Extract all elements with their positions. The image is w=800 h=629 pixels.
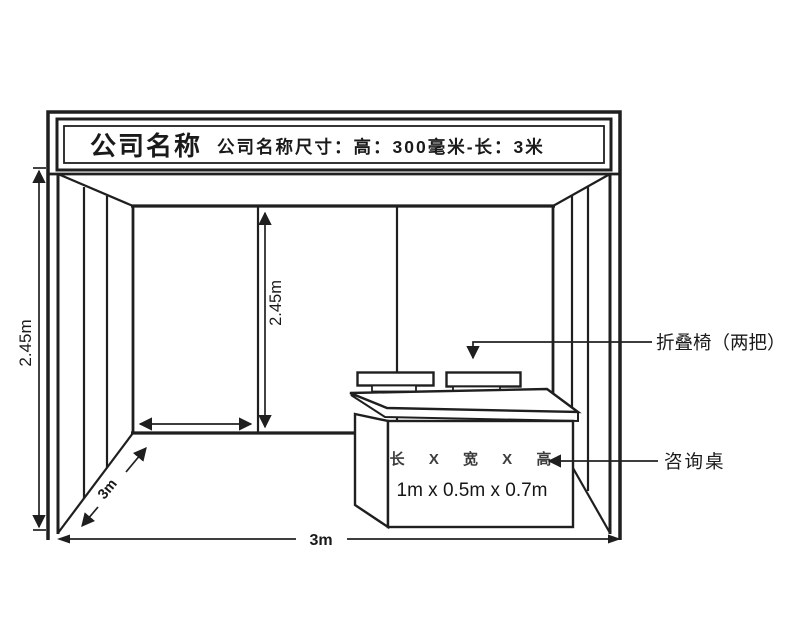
left-wall [58, 174, 133, 534]
depth-arrow-lower [82, 507, 98, 526]
width-arrowhead-left [57, 535, 70, 544]
right-wall-ceiling-edge [553, 174, 610, 206]
chairs-callout: 折叠椅（两把） [473, 332, 786, 358]
desk-left-face [355, 414, 388, 527]
desk-callout-label: 咨询桌 [664, 451, 726, 472]
inner-height-dimension: 2.45m [265, 213, 285, 427]
desk-dims-value: 1m x 0.5m x 0.7m [397, 480, 548, 501]
chairs-callout-label: 折叠椅（两把） [656, 332, 786, 353]
inner-height-value: 2.45m [267, 280, 285, 326]
desk-dims-header: 长 X 宽 X 高 [390, 450, 559, 468]
banner-size-note: 公司名称尺寸：高：300毫米-长：3米 [217, 137, 545, 157]
chairs-callout-arrow [473, 342, 652, 358]
desk-callout: 咨询桌 [549, 451, 726, 472]
booth-diagram: 公司名称 公司名称尺寸：高：300毫米-长：3米 2.45m [0, 0, 800, 629]
outer-height-value: 2.45m [16, 319, 35, 366]
outer-height-dimension: 2.45m [16, 168, 46, 530]
left-wall-floor-edge [58, 433, 133, 533]
chair-board [447, 373, 521, 387]
booth-diagram-page: 公司名称 公司名称尺寸：高：300毫米-长：3米 2.45m [0, 0, 800, 629]
left-wall-ceiling-edge [58, 174, 133, 206]
banner-company-name: 公司名称 [90, 131, 202, 161]
width-dimension: 3m [57, 532, 621, 549]
desk-front-face [388, 421, 573, 527]
depth-arrow-upper [126, 448, 146, 472]
width-value: 3m [309, 532, 332, 549]
chair-board [358, 373, 434, 386]
banner: 公司名称 公司名称尺寸：高：300毫米-长：3米 [57, 119, 611, 170]
consultation-desk: 长 X 宽 X 高 1m x 0.5m x 0.7m [350, 389, 578, 527]
